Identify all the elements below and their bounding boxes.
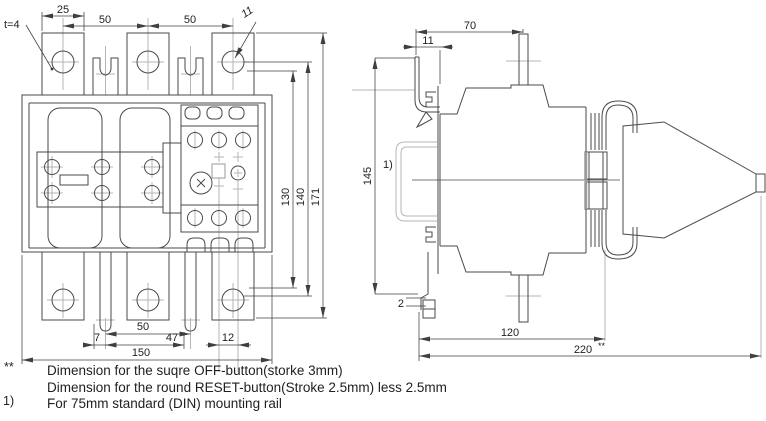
- dim-label-150: 150: [132, 347, 150, 359]
- strip-connector: [163, 143, 181, 213]
- rail-clip-bottom: [426, 227, 436, 242]
- body-bottom-profile: [440, 246, 586, 275]
- side-view: 70 11 145 1) 2 120 220 **: [352, 20, 765, 361]
- dim-label-2: 2: [398, 298, 404, 310]
- rail-ref-label: 1): [383, 159, 393, 171]
- dim-label-171: 171: [310, 188, 322, 206]
- front-view-outline: [22, 33, 272, 331]
- thickness-label: t=4: [4, 19, 20, 31]
- front-view: 25 50 50 t=4 11 130 140 171 50 7: [4, 4, 327, 372]
- body-top-profile: [440, 85, 586, 114]
- dim-label-11-side: 11: [422, 35, 433, 47]
- rail-latch: [417, 112, 432, 127]
- dim-label-25: 25: [57, 4, 69, 16]
- dim-label-70: 70: [464, 20, 476, 32]
- dim-label-120: 120: [501, 327, 519, 339]
- rail-hook-bottom: [421, 252, 428, 310]
- top-pin: [519, 34, 528, 85]
- side-view-light: [352, 61, 761, 358]
- footnote-reset-button: Dimension for the round RESET-button(Str…: [47, 380, 447, 395]
- terminal-cone: [623, 122, 756, 238]
- footnote-off-button: Dimension for the suqre OFF-button(stork…: [47, 363, 343, 378]
- rail-clip-top: [426, 92, 436, 107]
- dim-label-140: 140: [295, 188, 307, 206]
- clamp-block-lower: [585, 182, 607, 209]
- pole-channel-1: [48, 108, 102, 248]
- footnote-marker-asterisk: **: [4, 360, 14, 374]
- footnote-marker-1: 1): [3, 394, 14, 408]
- technical-drawing: 25 50 50 t=4 11 130 140 171 50 7: [0, 0, 766, 421]
- dim-label-7: 7: [94, 332, 100, 344]
- footnote-din-rail: For 75mm standard (DIN) mounting rail: [47, 396, 282, 411]
- cone-tip: [756, 174, 765, 192]
- off-button: [212, 164, 225, 178]
- dim-label-50-right: 50: [184, 14, 196, 26]
- dim-label-145: 145: [362, 167, 374, 185]
- hole-diameter-label: 11: [239, 4, 255, 20]
- dim-label-50-bottom: 50: [137, 321, 149, 333]
- dim-label-50-left: 50: [99, 14, 111, 26]
- drawing-sheet: 25 50 50 t=4 11 130 140 171 50 7: [0, 0, 766, 421]
- dim-label-47: 47: [166, 332, 178, 344]
- bottom-pin: [519, 275, 528, 322]
- dim-label-12: 12: [222, 332, 234, 344]
- side-view-outline: [412, 34, 765, 322]
- clamp-block-upper: [585, 152, 607, 179]
- dim-label-220-suffix: **: [598, 341, 606, 351]
- dim-label-220: 220: [574, 344, 592, 356]
- dim-label-130: 130: [280, 188, 292, 206]
- label-window: [60, 175, 88, 185]
- din-rail-channel: [396, 142, 437, 221]
- side-view-dimensions: 70 11 145 1) 2 120 220 **: [362, 20, 761, 361]
